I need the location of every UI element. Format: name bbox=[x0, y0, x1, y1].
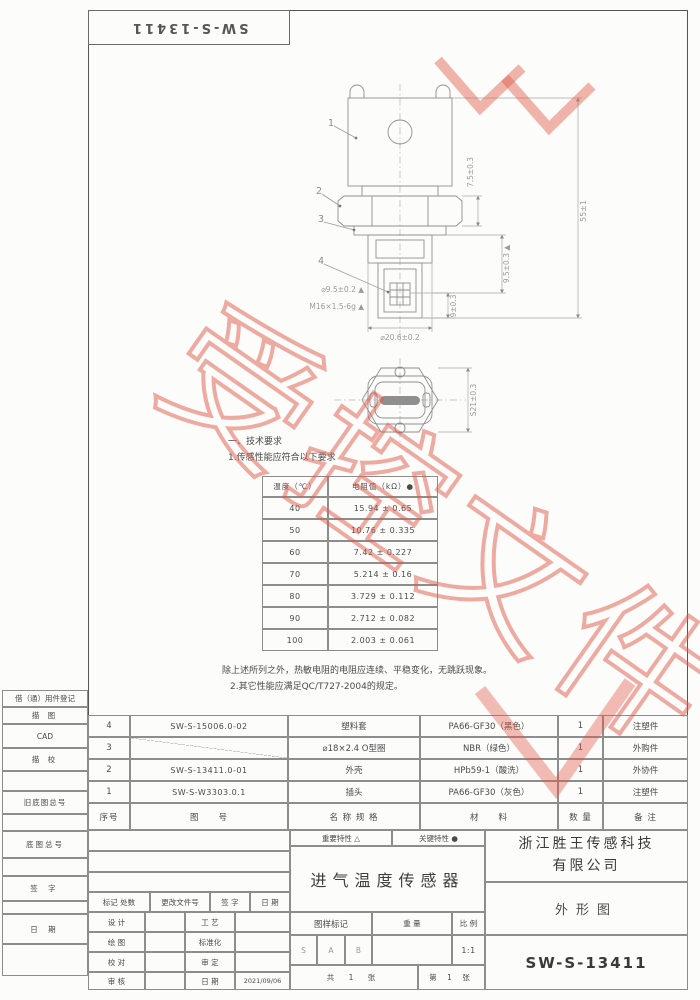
margin-block: 旧底图总号 bbox=[2, 791, 88, 814]
bom-cell: 2 bbox=[88, 759, 130, 781]
bom-cell: HPb59-1（酸洗） bbox=[420, 759, 558, 781]
company-line2: 有限公司 bbox=[553, 856, 621, 878]
bom-cell: NBR（绿色） bbox=[420, 737, 558, 759]
margin-block: 日 期 bbox=[2, 914, 88, 944]
sig-blank bbox=[145, 972, 185, 990]
res-header-value: 电阻值（kΩ）● bbox=[328, 476, 438, 497]
view-name: 外形图 bbox=[485, 882, 688, 935]
rev-header: 日 期 bbox=[250, 892, 290, 912]
margin-block: 描 校 bbox=[2, 748, 88, 771]
bom-cell: 注塑件 bbox=[603, 781, 688, 803]
bom-cell: ⌀18×2.4 O型圈 bbox=[288, 737, 420, 759]
dim-thread-spec: M16×1.5-6g ▲ bbox=[309, 302, 364, 311]
res-cell: 5.214 ± 0.16 bbox=[328, 563, 438, 585]
dim-tip-length: 9±0.3 bbox=[449, 294, 458, 317]
res-cell: 50 bbox=[262, 519, 328, 541]
bom-cell: SW-S-15006.0-02 bbox=[130, 715, 288, 737]
stage-mark: A bbox=[317, 935, 345, 965]
dim-body-diameter: ⌀20.6±0.2 bbox=[380, 333, 420, 342]
sig-craft: 工 艺 bbox=[185, 912, 235, 932]
bom-cell: SW-S-W3303.0.1 bbox=[130, 781, 288, 803]
rev-row-blank bbox=[88, 851, 290, 872]
res-cell: 100 bbox=[262, 629, 328, 651]
drawing-sheet: SW-S-13411 bbox=[0, 0, 700, 1000]
rev-header: 标记 处数 bbox=[88, 892, 150, 912]
bom-cell: 1 bbox=[558, 715, 603, 737]
company-line1: 浙江胜王传感科技 bbox=[519, 834, 655, 856]
res-cell: 2.003 ± 0.061 bbox=[328, 629, 438, 651]
res-cell: 90 bbox=[262, 607, 328, 629]
attr-key: 关键特性 ● bbox=[392, 830, 485, 846]
margin-block: CAD bbox=[2, 724, 88, 748]
margin-block-blank bbox=[2, 901, 88, 914]
sig-design: 设 计 bbox=[88, 912, 145, 932]
bom-header: 材 料 bbox=[420, 803, 558, 830]
sig-audit: 审 核 bbox=[88, 972, 145, 990]
bom-header: 数 量 bbox=[558, 803, 603, 830]
sig-blank bbox=[145, 952, 185, 972]
dim-tip-diameter: ⌀9.5±0.2 ▲ bbox=[321, 285, 364, 294]
tech-heading: 一、技术要求 bbox=[228, 434, 282, 447]
weight-label: 重 量 bbox=[372, 912, 452, 935]
res-cell: 60 bbox=[262, 541, 328, 563]
balloon-1: 1 bbox=[328, 118, 334, 129]
balloon-3: 3 bbox=[318, 214, 324, 225]
scale-value: 1:1 bbox=[452, 935, 485, 965]
bom-cell: 外购件 bbox=[603, 737, 688, 759]
margin-block-blank bbox=[2, 814, 88, 831]
bom-header: 序号 bbox=[88, 803, 130, 830]
sig-date-value: 2021/09/06 bbox=[235, 972, 290, 990]
margin-block-blank bbox=[2, 771, 88, 791]
rev-row-blank bbox=[88, 830, 290, 851]
balloon-2: 2 bbox=[316, 186, 322, 197]
dim-hex-size: S21±0.3 bbox=[469, 384, 478, 417]
sheet-index: 第 1 张 bbox=[418, 965, 485, 990]
mark-label: 图样标记 bbox=[290, 912, 372, 935]
rev-row-blank bbox=[88, 872, 290, 892]
res-cell: 70 bbox=[262, 563, 328, 585]
bom-cell: PA66-GF30（黑色） bbox=[420, 715, 558, 737]
bom-cell: 插头 bbox=[288, 781, 420, 803]
sheet-total: 共 1 张 bbox=[290, 965, 418, 990]
rev-header: 更改文件号 bbox=[150, 892, 210, 912]
bom-cell: 1 bbox=[558, 759, 603, 781]
dim-thread-length: 9.5±0.3 ▲ bbox=[502, 245, 511, 284]
weight-value-blank bbox=[372, 935, 452, 965]
dim-collar: 7.5±0.3 bbox=[466, 157, 475, 187]
bom-header: 名 称 规 格 bbox=[288, 803, 420, 830]
bom-header: 备 注 bbox=[603, 803, 688, 830]
res-cell: 7.42 ± 0.227 bbox=[328, 541, 438, 563]
res-cell: 40 bbox=[262, 497, 328, 519]
bom-cell: SW-S-13411.0-01 bbox=[130, 759, 288, 781]
res-cell: 15.94 ± 0.65 bbox=[328, 497, 438, 519]
company-name: 浙江胜王传感科技 有限公司 bbox=[485, 830, 688, 882]
dim-overall-height: 55±1 bbox=[579, 200, 588, 222]
corner-code-box: SW-S-13411 bbox=[88, 10, 290, 45]
rev-header: 签 字 bbox=[210, 892, 250, 912]
res-cell: 10.76 ± 0.335 bbox=[328, 519, 438, 541]
res-cell: 2.712 ± 0.082 bbox=[328, 607, 438, 629]
scale-label: 比 例 bbox=[452, 912, 485, 935]
bom-cell: 注塑件 bbox=[603, 715, 688, 737]
attr-important: 重要特性 △ bbox=[290, 830, 392, 846]
sig-blank bbox=[145, 932, 185, 952]
sig-blank bbox=[235, 952, 290, 972]
sig-draw: 绘 图 bbox=[88, 932, 145, 952]
margin-block-blank bbox=[2, 944, 88, 976]
margin-block: 底图总号 bbox=[2, 831, 88, 858]
bom-cell: PA66-GF30（灰色） bbox=[420, 781, 558, 803]
sig-standard: 标准化 bbox=[185, 932, 235, 952]
sensor-drawing: 55±1 7.5±0.3 9.5±0.3 ▲ 9±0.3 ⌀20.6±0.2 ⌀… bbox=[280, 60, 620, 450]
stage-mark: S bbox=[290, 935, 317, 965]
sig-approve: 审 定 bbox=[185, 952, 235, 972]
res-cell: 80 bbox=[262, 585, 328, 607]
bom-cell: 1 bbox=[558, 781, 603, 803]
sig-date-label: 日 期 bbox=[185, 972, 235, 990]
margin-block: 签 字 bbox=[2, 876, 88, 901]
tech-item1: 1.传感性能应符合以下要求 bbox=[228, 450, 336, 463]
margin-block: 描 图 bbox=[2, 707, 88, 724]
margin-block: 借（通）用件登记 bbox=[2, 690, 88, 707]
bom-cell: 外壳 bbox=[288, 759, 420, 781]
product-name: 进气温度传感器 bbox=[290, 846, 485, 912]
stage-mark: B bbox=[345, 935, 372, 965]
bom-cell: 4 bbox=[88, 715, 130, 737]
bom-cell: 塑料套 bbox=[288, 715, 420, 737]
bom-cell-blank bbox=[130, 737, 288, 759]
balloon-numbers: 1 2 3 4 bbox=[316, 118, 334, 267]
corner-code: SW-S-13411 bbox=[130, 20, 249, 35]
res-header-temp: 温度（℃） bbox=[262, 476, 328, 497]
margin-block-blank bbox=[2, 858, 88, 876]
tech-note2: 2.其它性能应满足QC/T727-2004的规定。 bbox=[230, 679, 403, 692]
tech-note1: 除上述所列之外，热敏电阻的电阻应连续、平稳变化，无跳跃现象。 bbox=[222, 663, 492, 676]
sig-blank bbox=[235, 912, 290, 932]
bom-cell: 外协件 bbox=[603, 759, 688, 781]
balloon-4: 4 bbox=[318, 256, 324, 267]
sig-blank bbox=[235, 932, 290, 952]
bom-cell: 1 bbox=[558, 737, 603, 759]
sig-blank bbox=[145, 912, 185, 932]
bom-cell: 3 bbox=[88, 737, 130, 759]
drawing-number: SW-S-13411 bbox=[485, 935, 688, 990]
sig-check: 校 对 bbox=[88, 952, 145, 972]
bom-header: 图 号 bbox=[130, 803, 288, 830]
res-cell: 3.729 ± 0.112 bbox=[328, 585, 438, 607]
bom-cell: 1 bbox=[88, 781, 130, 803]
